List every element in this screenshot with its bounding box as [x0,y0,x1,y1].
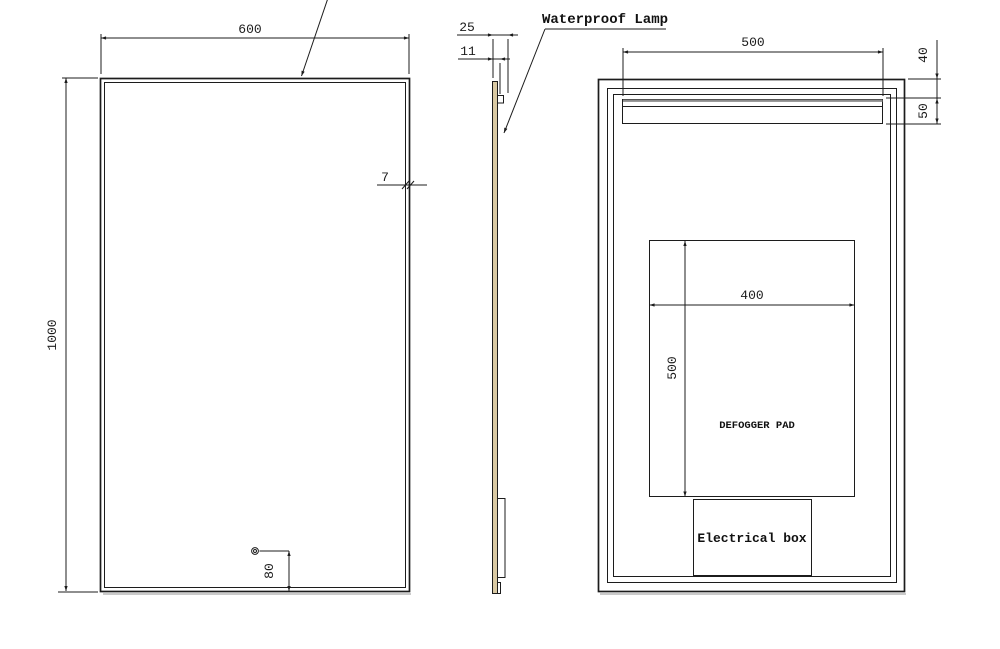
front-frame-edge-dimension: 7 [377,170,427,189]
front-view: 600 1000 7 80 [45,0,427,594]
defogger-pad: DEFOGGER PAD 400 500 [650,241,855,497]
front-frame-edge-value: 7 [381,170,389,185]
electrical-box: Electrical box [694,500,812,576]
lamp-width-dimension: 500 [623,35,883,96]
side-depth-value: 25 [459,20,475,35]
waterproof-lamp-callout: Waterproof Lamp [504,12,668,133]
front-mirror-outer-rect [101,79,410,592]
front-height-dimension: 1000 [45,78,98,592]
front-height-value: 1000 [45,319,60,350]
side-view: 25 11 [457,20,518,594]
mirror-drawing-svg: 600 1000 7 80 [0,0,1000,649]
sensor-offset-value: 80 [262,563,277,579]
front-width-value: 600 [238,22,261,37]
side-glass-profile [493,82,498,594]
front-width-dimension: 600 [101,22,409,74]
touch-sensor-symbol [252,548,259,555]
lamp-vertical-dimensions: 40 50 [886,40,941,124]
lamp-top-offset-value: 40 [916,47,931,63]
side-lamp-housing-profile [498,96,504,104]
pad-height-value: 500 [665,356,680,379]
back-outer-rect [599,80,905,592]
side-electrical-box-profile [498,499,506,578]
side-glass-value: 11 [460,44,476,59]
electrical-box-label: Electrical box [697,531,806,546]
defogger-pad-label: DEFOGGER PAD [719,420,795,432]
lamp-width-value: 500 [741,35,764,50]
waterproof-lamp-label: Waterproof Lamp [542,12,668,28]
defogger-pad-rect [650,241,855,497]
lamp-height-value: 50 [916,103,931,119]
sensor-offset-dimension: 80 [260,551,290,591]
side-bottom-bracket-profile [498,583,501,594]
side-glass-dimension: 11 [458,44,510,94]
waterproof-lamp-leader-line [504,29,545,133]
front-mirror-inner-rect [105,83,406,588]
back-middle-rect [608,89,897,583]
back-inner-rect [614,95,891,577]
back-view: 500 40 50 DEFOGGER PAD 400 500 [599,35,942,594]
back-lamp-strip [623,100,883,124]
technical-drawing-canvas: 600 1000 7 80 [0,0,1000,649]
pad-width-value: 400 [740,288,763,303]
